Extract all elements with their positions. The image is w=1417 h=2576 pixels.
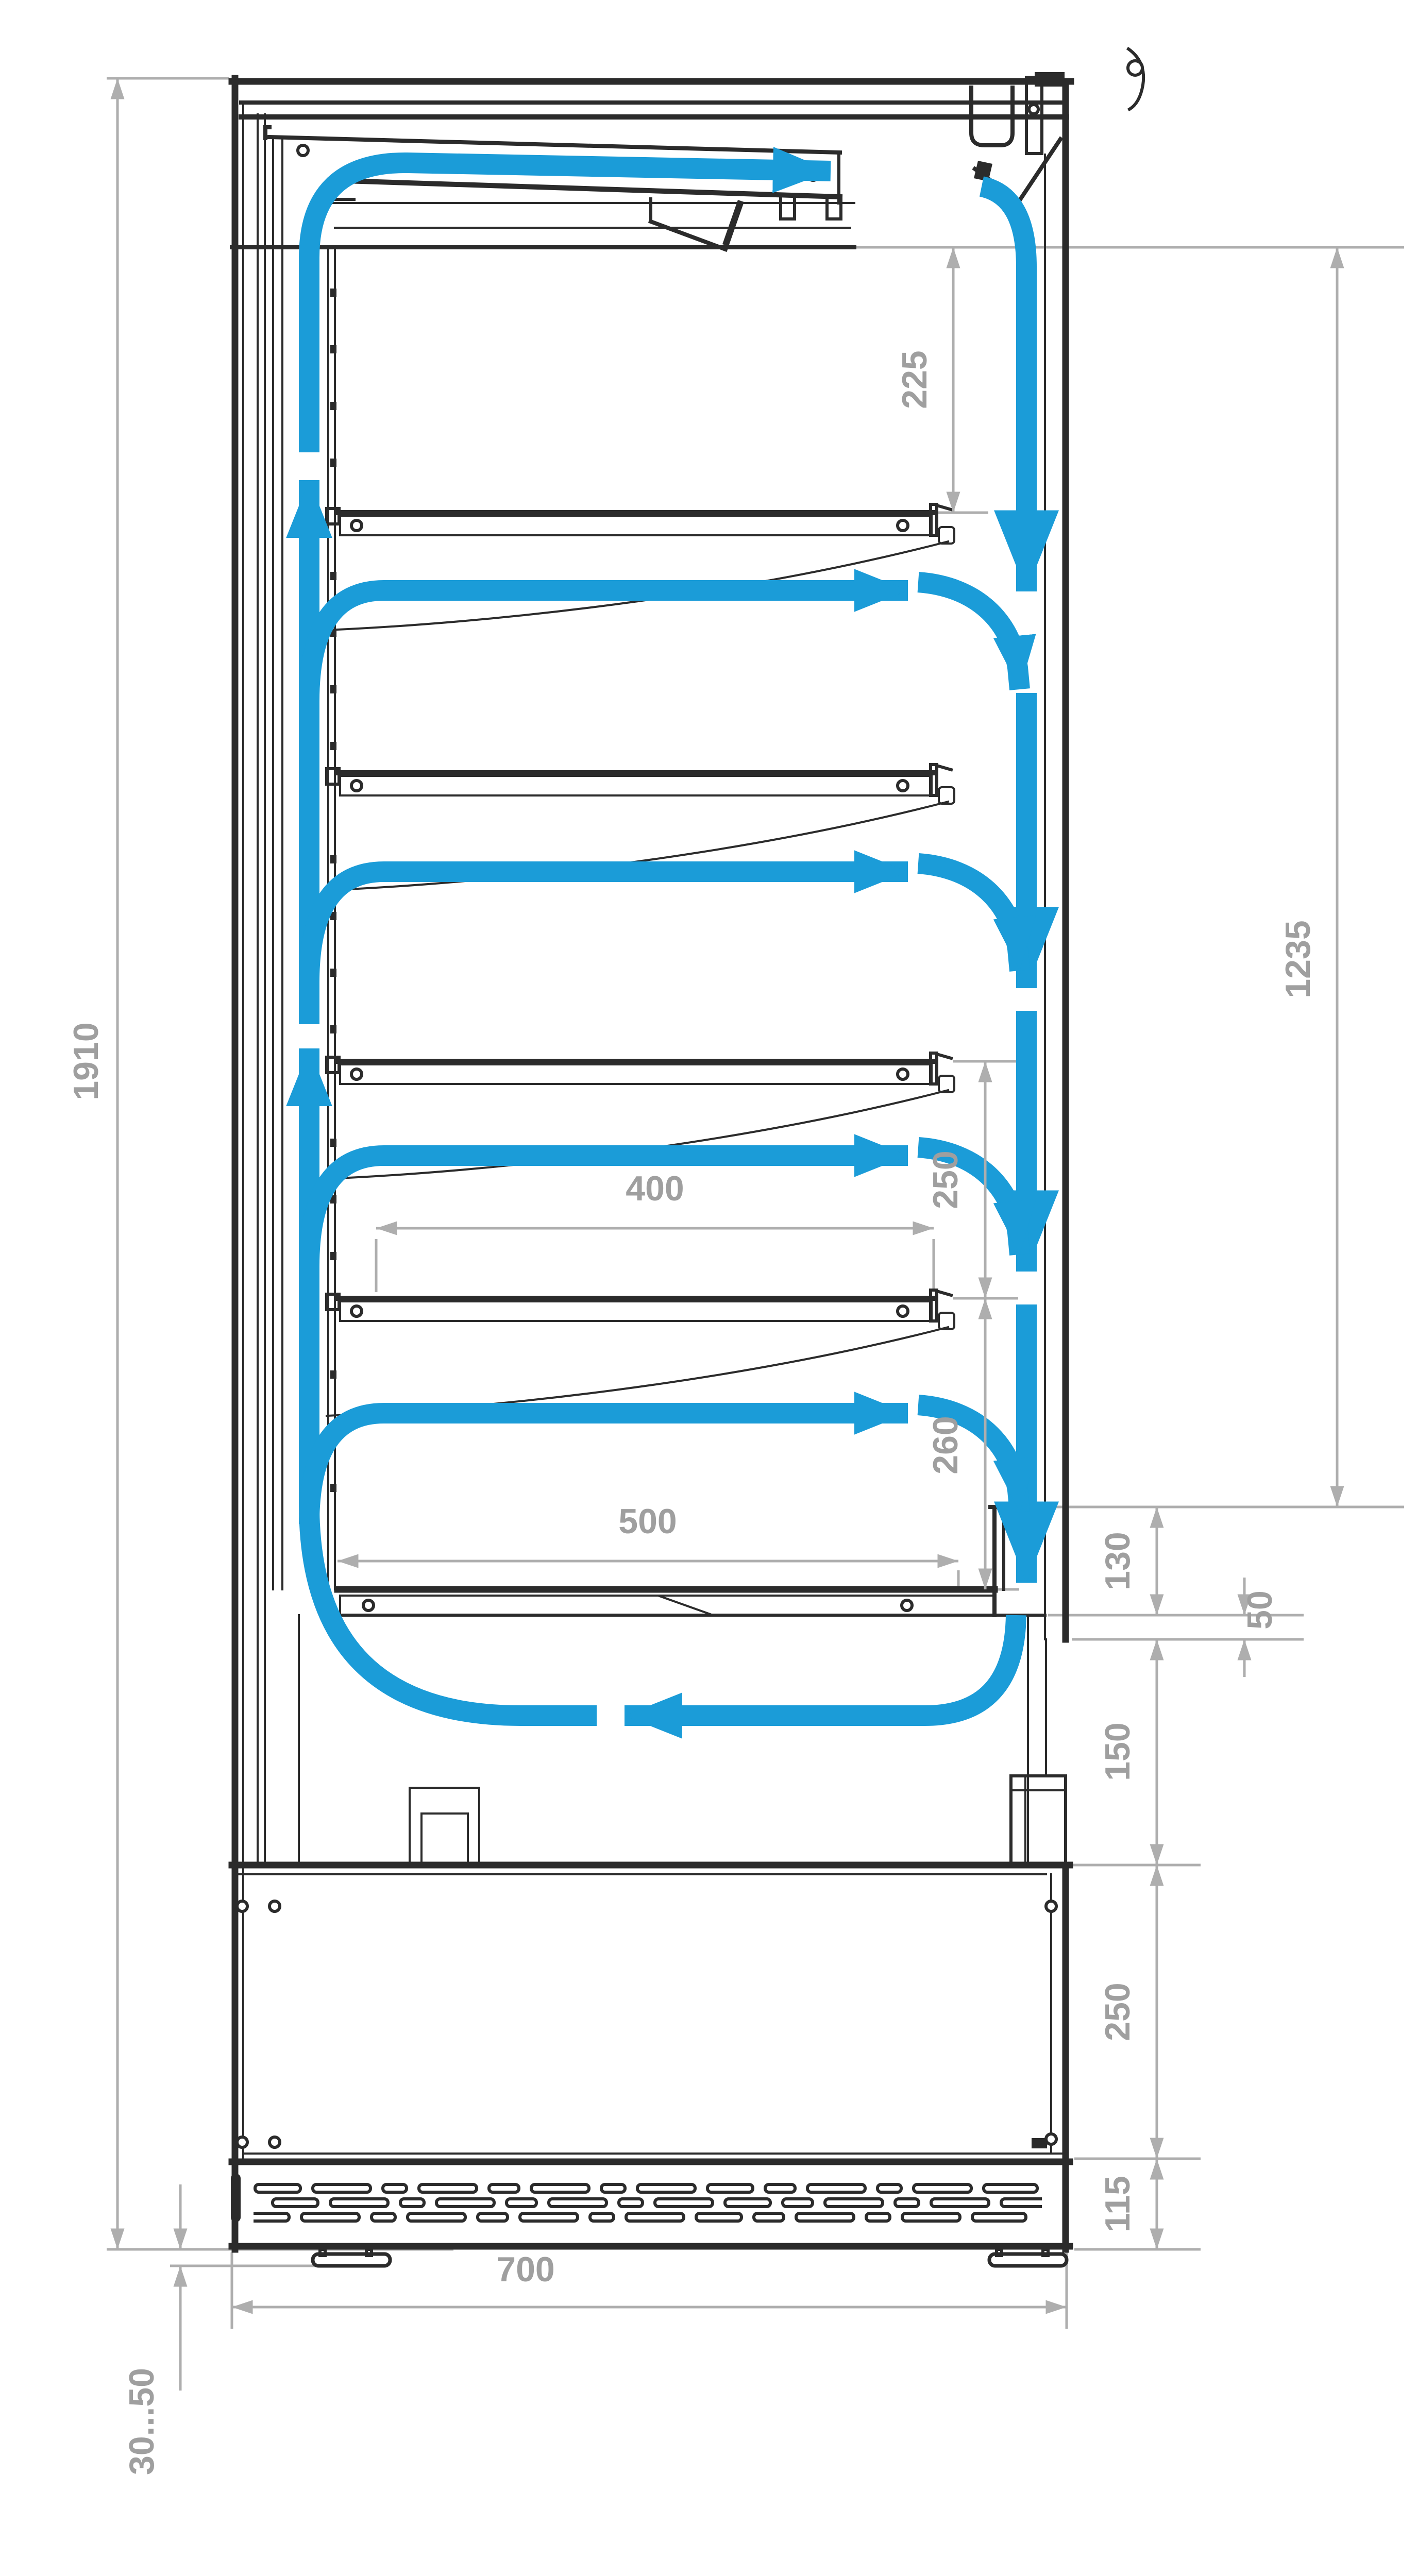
airflow-merge-2 xyxy=(918,863,1020,971)
dim-label-1910: 1910 xyxy=(66,1022,106,1100)
dim-opening-height: 1235 xyxy=(1278,247,1337,1507)
return-grille-lip xyxy=(990,1507,1008,1615)
dim-label-500: 500 xyxy=(618,1502,677,1541)
dim-cabinet-depth: 700 xyxy=(232,2250,1067,2307)
deflector-vane xyxy=(722,200,744,246)
dim-return-grille: 130 xyxy=(1098,1507,1157,1615)
dim-overall-height: 1910 xyxy=(66,78,117,2249)
wall-bracket-hook xyxy=(1128,49,1143,109)
airflow-shelf-branch-4 xyxy=(309,1413,908,1524)
under-deck xyxy=(299,1615,1066,1865)
shelf-4 xyxy=(327,1290,954,1416)
dim-machine-front: 250 xyxy=(1098,1865,1157,2159)
dim-label-30-50: 30...50 xyxy=(122,2368,161,2475)
dim-label-400: 400 xyxy=(626,1169,684,1208)
condensing-unit-box xyxy=(1011,1776,1066,1865)
airflow-merge-1 xyxy=(918,582,1020,689)
shelf-1 xyxy=(327,504,954,630)
dim-deck-clearance: 50 xyxy=(1240,1578,1279,1677)
dim-bottom-shelf-gap: 260 xyxy=(926,1298,985,1589)
airflow-shelf-branch-2 xyxy=(309,872,908,982)
dim-foot-adjust: 30...50 xyxy=(122,2184,180,2475)
louvre-slots xyxy=(244,2184,1055,2221)
dim-shelf-depth: 400 xyxy=(376,1169,934,1228)
dim-label-115: 115 xyxy=(1098,2176,1137,2232)
airflow-return-under-deck xyxy=(625,1615,1016,1716)
louvre-panel xyxy=(232,2175,1070,2246)
right-foot xyxy=(989,2249,1067,2266)
dim-label-50: 50 xyxy=(1240,1590,1279,1630)
feet xyxy=(313,2249,1067,2266)
front-face xyxy=(1045,84,1066,1639)
screw xyxy=(298,145,308,156)
dim-label-225: 225 xyxy=(895,350,934,409)
air-deflector xyxy=(651,199,744,249)
airflow-shelf-branch-1 xyxy=(309,590,908,701)
canopy xyxy=(232,49,1143,249)
duct-bracket xyxy=(781,199,795,219)
dim-label-250-machine: 250 xyxy=(1098,1982,1137,2041)
airflow-canopy-forward xyxy=(309,163,831,452)
airflow-shelf-branch-3 xyxy=(309,1156,908,1266)
dim-label-250-shelf: 250 xyxy=(926,1150,965,1209)
dim-deck-depth: 500 xyxy=(338,1502,958,1561)
cabinet-cross-section-diagram: 1910 30...50 225 1235 250 260 400 xyxy=(0,0,1417,2576)
dim-label-150: 150 xyxy=(1098,1722,1137,1781)
cabinet-cross-section-page: 1910 30...50 225 1235 250 260 400 xyxy=(0,0,1417,2576)
panel-clip xyxy=(1032,2138,1047,2148)
dim-top-gap: 225 xyxy=(895,247,953,513)
dim-louvre-height: 115 xyxy=(1098,2159,1157,2249)
corner-cap xyxy=(1035,72,1065,87)
dim-lower-front: 150 xyxy=(1098,1639,1157,1865)
dim-label-700: 700 xyxy=(496,2250,554,2289)
shelves xyxy=(327,504,954,1416)
dim-label-1235: 1235 xyxy=(1278,920,1318,998)
left-foot xyxy=(313,2249,390,2266)
dim-label-130: 130 xyxy=(1098,1532,1137,1590)
dim-label-260: 260 xyxy=(926,1416,965,1474)
